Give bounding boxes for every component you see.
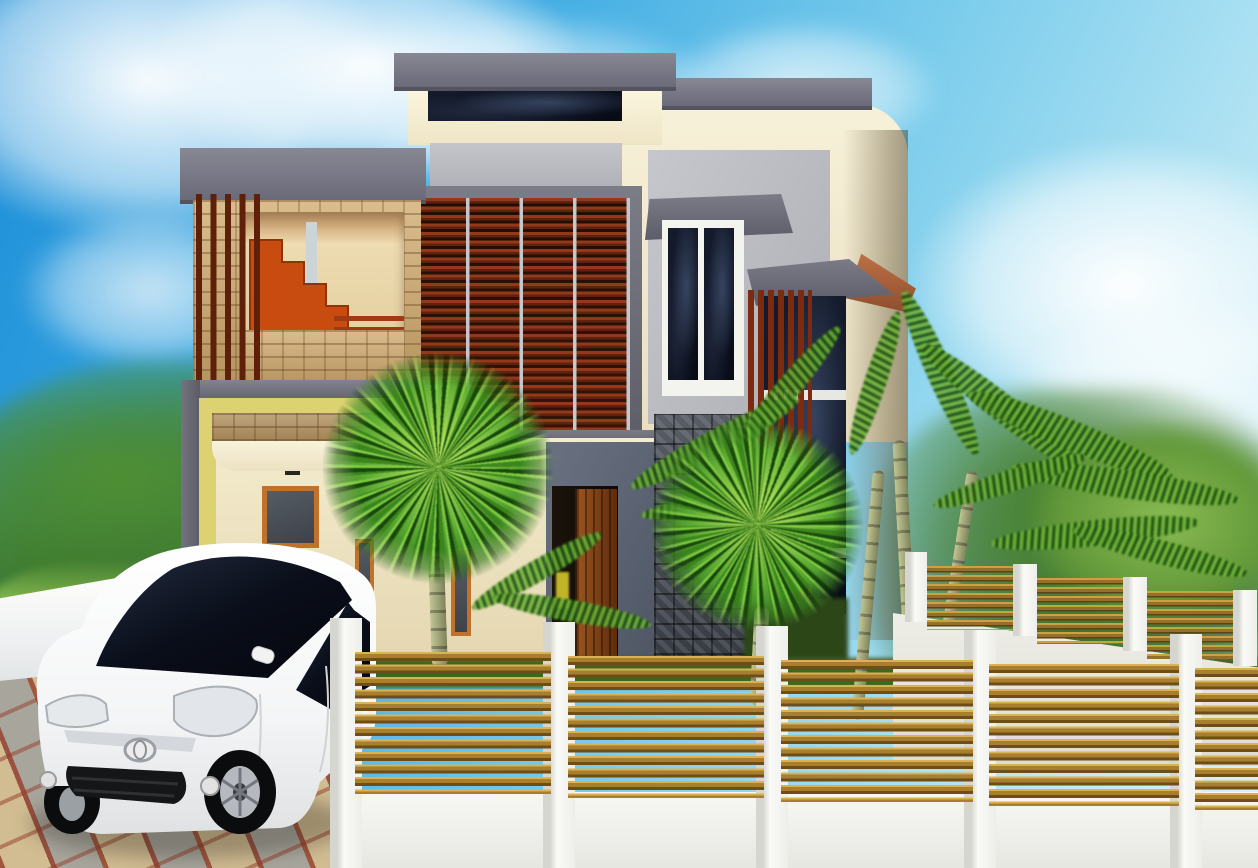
rear-roof-slab [660, 78, 872, 110]
car-headlight-left [46, 695, 108, 727]
side-fence-pillar [1123, 577, 1147, 651]
side-fence-pillar [1013, 564, 1037, 636]
clerestory-window [428, 91, 622, 121]
car-foglight [40, 772, 56, 788]
balcony-timber-screen [196, 194, 266, 388]
side-fence-panel [927, 566, 1013, 630]
fence-slat-panel [781, 660, 973, 802]
tower-gray-panel [430, 143, 622, 188]
side-fence-pillar [1233, 590, 1257, 666]
tall-window-pane [704, 228, 734, 380]
fence-slat-panel [989, 664, 1179, 806]
side-fence-panel [1037, 578, 1123, 644]
entrance-door [575, 489, 617, 663]
tower-roof-slab [394, 53, 676, 91]
toyota-emblem [125, 739, 155, 761]
side-fence-pillar [905, 552, 927, 622]
car-foglight [201, 777, 219, 795]
tall-window-pane [668, 228, 698, 380]
fence-slat-panel [568, 656, 764, 798]
fence-slat-panel [1195, 668, 1258, 810]
architectural-render [0, 0, 1258, 868]
fence-slat-panel [355, 652, 551, 794]
